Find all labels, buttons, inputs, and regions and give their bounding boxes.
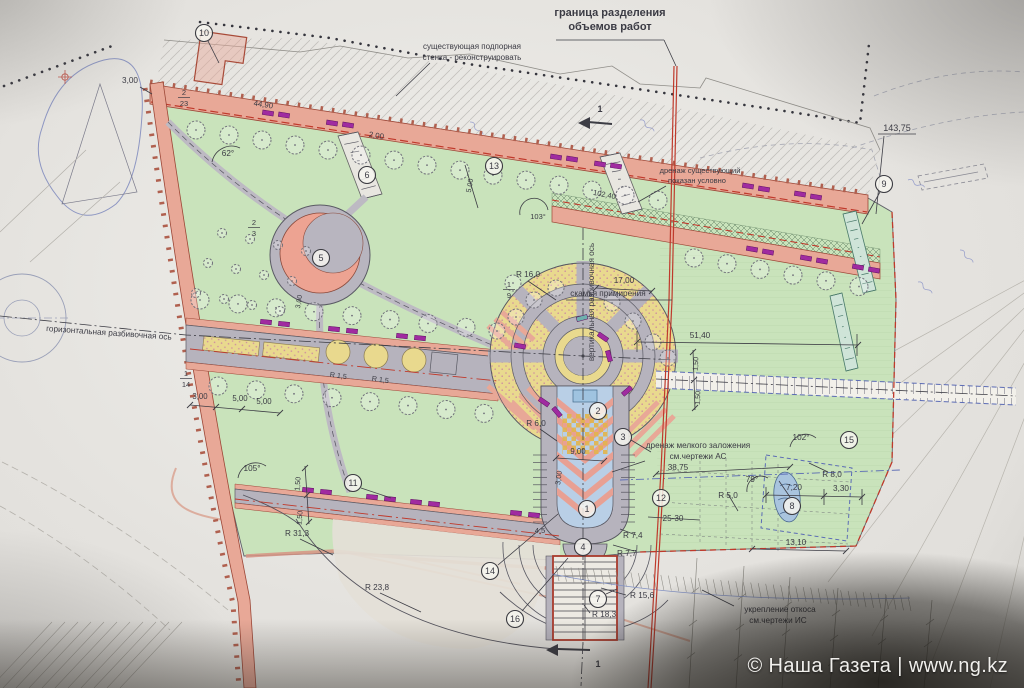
svg-text:13: 13: [489, 161, 499, 171]
tree: [232, 265, 241, 274]
plan-label: R 15,6: [630, 591, 655, 600]
svg-text:9: 9: [881, 179, 886, 189]
bench: [528, 512, 539, 518]
plan-label: 3,30: [833, 484, 849, 493]
callout-10: 10: [196, 25, 213, 42]
plan-label: 25-30: [663, 514, 684, 523]
plan-label: вертикальная разбивочная ось: [587, 243, 596, 361]
tree: [784, 266, 802, 284]
svg-text:2: 2: [595, 406, 600, 416]
callout-15: 15: [841, 432, 858, 449]
tree: [192, 289, 201, 298]
callout-12: 12: [653, 490, 670, 507]
plan-label: дренаж мелкого заложения: [646, 441, 750, 450]
tree: [625, 313, 641, 329]
svg-text:6: 6: [364, 170, 369, 180]
plan-label: R 6,0: [526, 419, 546, 428]
tree: [248, 301, 257, 310]
tree: [343, 307, 361, 325]
callout-2: 2: [590, 403, 607, 420]
plan-label: 1: [595, 659, 600, 669]
tree: [288, 277, 297, 286]
plan-label: R 7,4: [623, 531, 643, 540]
tree: [418, 156, 436, 174]
plan-label: скамья примирения: [570, 289, 645, 298]
svg-text:10: 10: [199, 28, 209, 38]
tree: [850, 278, 868, 296]
tree: [419, 314, 437, 332]
svg-text:1: 1: [184, 369, 188, 378]
bench: [428, 501, 439, 507]
tree: [660, 350, 676, 366]
watermark-credit: © Наша Газета | www.ng.kz: [747, 655, 1008, 678]
svg-text:1: 1: [584, 504, 589, 514]
plan-label: 3,00: [192, 392, 208, 401]
plan-label: 1,50: [294, 510, 304, 525]
plan-label: R 23,8: [365, 583, 390, 592]
tree: [718, 255, 736, 273]
tree: [187, 121, 205, 139]
plan-label: 17,00: [614, 276, 635, 285]
plan-label: 102°: [793, 433, 810, 442]
bench: [302, 487, 313, 493]
tree: [437, 400, 455, 418]
plan-label: см.чертежи АС: [670, 452, 727, 461]
tree: [274, 241, 283, 250]
tree: [305, 303, 323, 321]
callout-4: 4: [575, 539, 592, 556]
tree: [381, 311, 399, 329]
plan-label: стенка - реконструировать: [423, 53, 522, 62]
svg-text:7: 7: [595, 594, 600, 604]
svg-text:3: 3: [252, 229, 256, 238]
tree: [229, 295, 247, 313]
tree: [220, 126, 238, 144]
tree: [548, 280, 564, 296]
plan-drawing: граница разделенияобъемов работсуществую…: [0, 0, 1024, 688]
bench: [278, 321, 289, 327]
tree: [475, 404, 493, 422]
tree: [204, 259, 213, 268]
plan-label: 5,00: [232, 394, 248, 403]
plan-label: 3,00: [553, 470, 564, 485]
tree: [286, 136, 304, 154]
plan-label: существующая подпорная: [423, 42, 521, 51]
callout-1: 1: [579, 501, 596, 518]
svg-text:1: 1: [507, 280, 511, 289]
svg-text:14: 14: [182, 380, 190, 389]
plan-label: показан условно: [668, 176, 726, 185]
svg-text:15: 15: [844, 435, 854, 445]
plan-label: горизонтальная разбивочная ось: [46, 324, 172, 342]
tree: [319, 141, 337, 159]
plan-label: 105°: [244, 464, 261, 473]
plan-label: R 16,0: [516, 270, 541, 279]
tree: [276, 307, 285, 316]
bench: [320, 489, 331, 495]
callout-7: 7: [590, 591, 607, 608]
svg-text:4: 4: [580, 542, 585, 552]
tree: [751, 260, 769, 278]
plan-label: см.чертежи ИС: [749, 616, 807, 625]
svg-text:2: 2: [252, 218, 256, 227]
callout-8: 8: [784, 498, 801, 515]
svg-text:5: 5: [318, 253, 323, 263]
plan-label: 1,50: [292, 476, 302, 491]
plan-label: 4,5: [535, 526, 546, 535]
bench: [510, 510, 521, 516]
callout-14: 14: [482, 563, 499, 580]
tree: [817, 272, 835, 290]
plan-label: дренаж существующий: [660, 166, 741, 175]
plan-label: R 31,3: [285, 529, 310, 538]
tree: [508, 309, 524, 325]
plan-label: R 8,0: [822, 470, 842, 479]
tree: [209, 377, 227, 395]
tree: [302, 247, 311, 256]
tree: [285, 385, 303, 403]
plan-label: 13,10: [786, 538, 807, 547]
callout-5: 5: [313, 250, 330, 267]
tree: [323, 389, 341, 407]
plan-label: R 5,0: [718, 491, 738, 500]
svg-text:12: 12: [656, 493, 666, 503]
tree: [385, 151, 403, 169]
tree: [399, 397, 417, 415]
svg-text:16: 16: [510, 614, 520, 624]
plan-label: R 7,7: [617, 549, 637, 558]
callout-16: 16: [507, 611, 524, 628]
callout-13: 13: [486, 158, 503, 175]
plan-label: 51,40: [690, 331, 711, 340]
plan-label: объемов работ: [568, 21, 652, 33]
plan-label: 3,00: [122, 76, 138, 85]
callout-9: 9: [876, 176, 893, 193]
plan-label: 79°: [746, 475, 758, 484]
bench: [346, 328, 357, 334]
callout-6: 6: [359, 167, 376, 184]
plan-label: 5,00: [256, 397, 272, 406]
tree: [260, 271, 269, 280]
plan-label: укрепление откоса: [744, 605, 816, 614]
plan-label: 62°: [222, 149, 234, 158]
svg-text:14: 14: [485, 566, 495, 576]
tree: [253, 131, 271, 149]
svg-text:2: 2: [182, 88, 186, 97]
bench: [260, 319, 271, 325]
bench: [384, 496, 395, 502]
tree: [457, 318, 475, 336]
plan-label: 1,50: [693, 391, 703, 405]
bench: [414, 335, 425, 341]
tree: [361, 393, 379, 411]
plan-label: 143,75: [883, 123, 911, 133]
plan-label: 7,20: [786, 483, 802, 492]
plan-label: граница разделения: [554, 7, 665, 19]
tree: [550, 176, 568, 194]
svg-text:11: 11: [348, 478, 357, 488]
svg-text:23: 23: [180, 99, 188, 108]
tree: [517, 171, 535, 189]
plan-label: R 18,3: [592, 610, 617, 619]
bench: [396, 333, 407, 339]
callout-3: 3: [615, 429, 632, 446]
tree: [616, 186, 634, 204]
tree: [220, 295, 229, 304]
tree: [489, 323, 505, 339]
callout-11: 11: [345, 475, 362, 492]
plan-label: 1,50: [691, 357, 701, 371]
bench: [410, 499, 421, 505]
site-plan-photo: граница разделенияобъемов работсуществую…: [0, 0, 1024, 688]
svg-text:8: 8: [789, 501, 794, 511]
tree: [218, 229, 227, 238]
svg-text:3: 3: [620, 432, 625, 442]
tree: [352, 146, 370, 164]
bench: [328, 326, 339, 332]
tree: [526, 292, 542, 308]
plan-label: 1: [597, 104, 602, 114]
svg-text:9: 9: [507, 291, 511, 300]
plan-label: 103°: [530, 212, 546, 221]
plan-label: 38,75: [668, 463, 689, 472]
bench: [366, 494, 377, 500]
tree: [685, 249, 703, 267]
plan-label: 9,00: [570, 447, 586, 456]
